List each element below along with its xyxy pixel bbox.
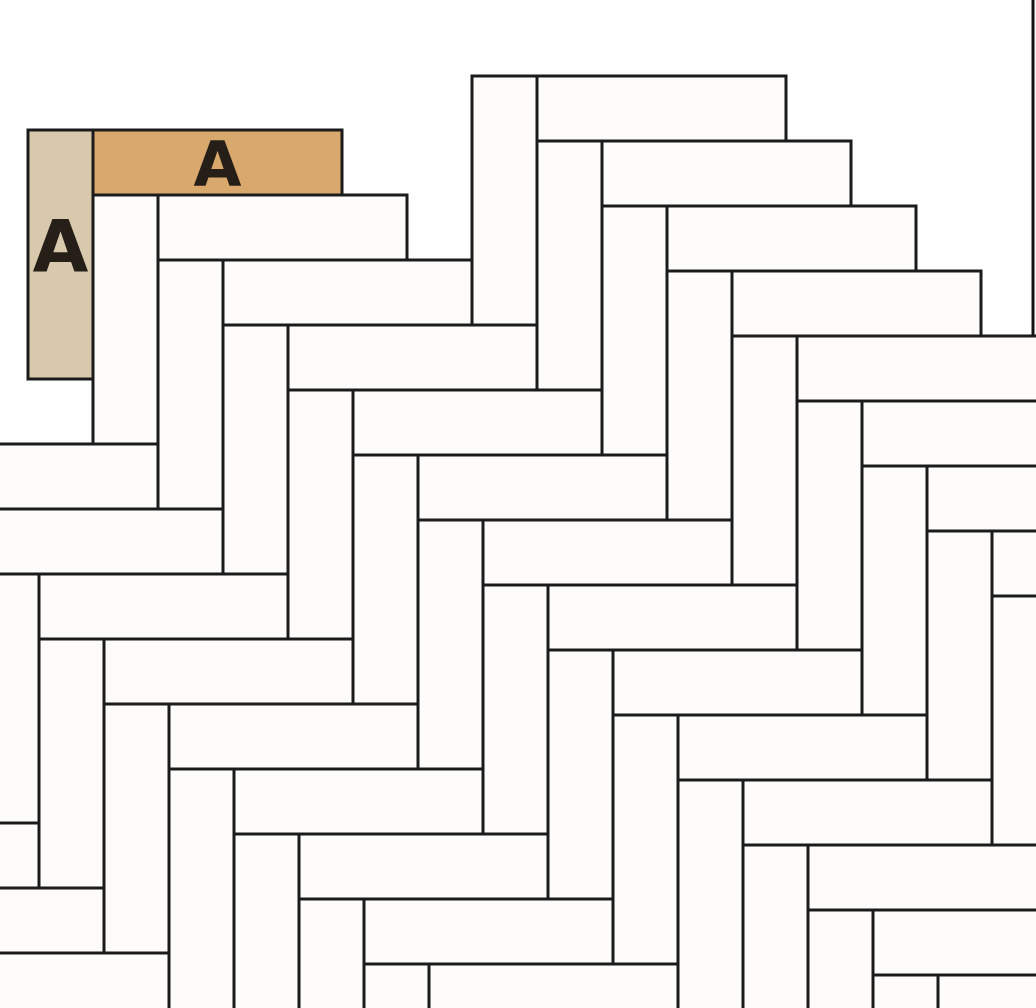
tile — [873, 975, 938, 1008]
tile — [288, 390, 353, 639]
tile — [862, 466, 927, 715]
tile — [732, 271, 981, 336]
tile — [678, 715, 927, 780]
tile — [39, 639, 104, 888]
tile — [223, 260, 472, 325]
tile — [678, 780, 743, 1008]
tile — [862, 401, 1036, 466]
tile — [743, 780, 992, 845]
tile — [39, 574, 288, 639]
tile — [234, 769, 483, 834]
tile — [873, 910, 1036, 975]
tile — [548, 585, 797, 650]
tile — [797, 401, 862, 650]
tile — [104, 639, 353, 704]
tile — [364, 899, 613, 964]
tile — [0, 574, 39, 823]
herringbone-pattern: AA — [0, 0, 1036, 1008]
tile — [299, 834, 548, 899]
tile — [0, 509, 223, 574]
tile — [418, 455, 667, 520]
tile — [732, 336, 797, 585]
tile — [288, 325, 537, 390]
tile-label-A-H0: A — [194, 128, 242, 201]
tile — [602, 141, 851, 206]
tile — [472, 76, 537, 325]
tile — [0, 888, 104, 953]
tile — [429, 964, 678, 1008]
tile — [353, 455, 418, 704]
tile — [0, 823, 39, 888]
tile — [797, 336, 1036, 401]
tile — [353, 390, 602, 455]
tile — [93, 195, 158, 444]
tile — [364, 964, 429, 1008]
tile — [537, 76, 786, 141]
tile — [602, 206, 667, 455]
tile — [548, 650, 613, 899]
tile — [483, 585, 548, 834]
tile — [667, 206, 916, 271]
tile — [927, 466, 1036, 531]
tile — [808, 845, 1036, 910]
tile — [418, 520, 483, 769]
herringbone-puzzle-stage: AA — [0, 0, 1036, 1008]
tile — [234, 834, 299, 1008]
tile — [938, 975, 1036, 1008]
tile — [613, 715, 678, 964]
tile — [169, 769, 234, 1008]
tile — [299, 899, 364, 1008]
tile — [158, 260, 223, 509]
tile — [808, 910, 873, 1008]
tile — [613, 650, 862, 715]
tile — [104, 704, 169, 953]
tile — [743, 845, 808, 1008]
tile — [667, 271, 732, 520]
tile — [0, 444, 158, 509]
tile — [169, 704, 418, 769]
tile — [483, 520, 732, 585]
tile — [223, 325, 288, 574]
tile — [158, 195, 407, 260]
tile — [927, 531, 992, 780]
tile — [992, 596, 1036, 845]
tile-label-A-V0: A — [33, 205, 89, 289]
tile — [537, 141, 602, 390]
tile — [0, 953, 169, 1008]
tile — [992, 531, 1036, 596]
